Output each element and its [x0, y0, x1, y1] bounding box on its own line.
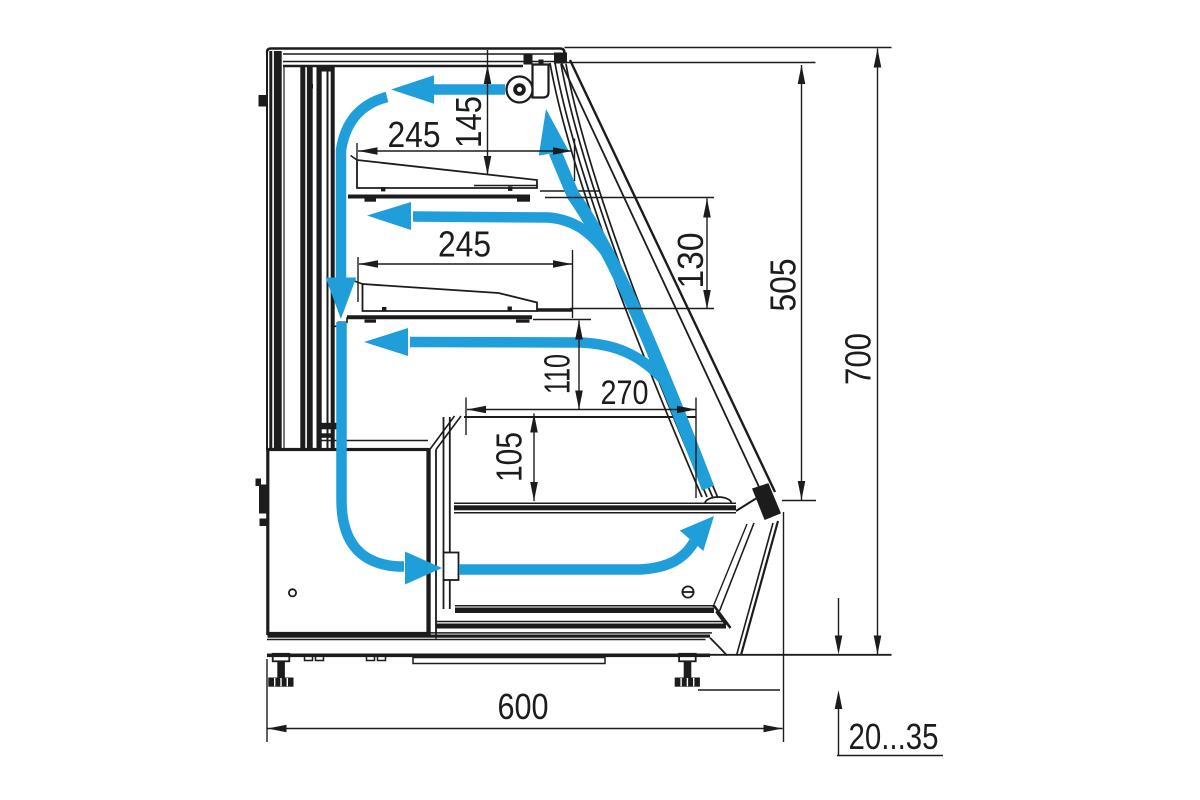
svg-text:145: 145 [448, 96, 489, 148]
svg-text:110: 110 [537, 354, 578, 394]
svg-text:130: 130 [670, 233, 711, 289]
svg-text:245: 245 [438, 224, 491, 265]
svg-text:245: 245 [388, 114, 441, 155]
svg-text:20...35: 20...35 [849, 716, 939, 757]
svg-text:270: 270 [601, 374, 649, 412]
svg-text:105: 105 [489, 432, 530, 482]
svg-text:505: 505 [763, 259, 804, 312]
svg-text:700: 700 [838, 333, 879, 385]
svg-text:600: 600 [498, 686, 549, 727]
